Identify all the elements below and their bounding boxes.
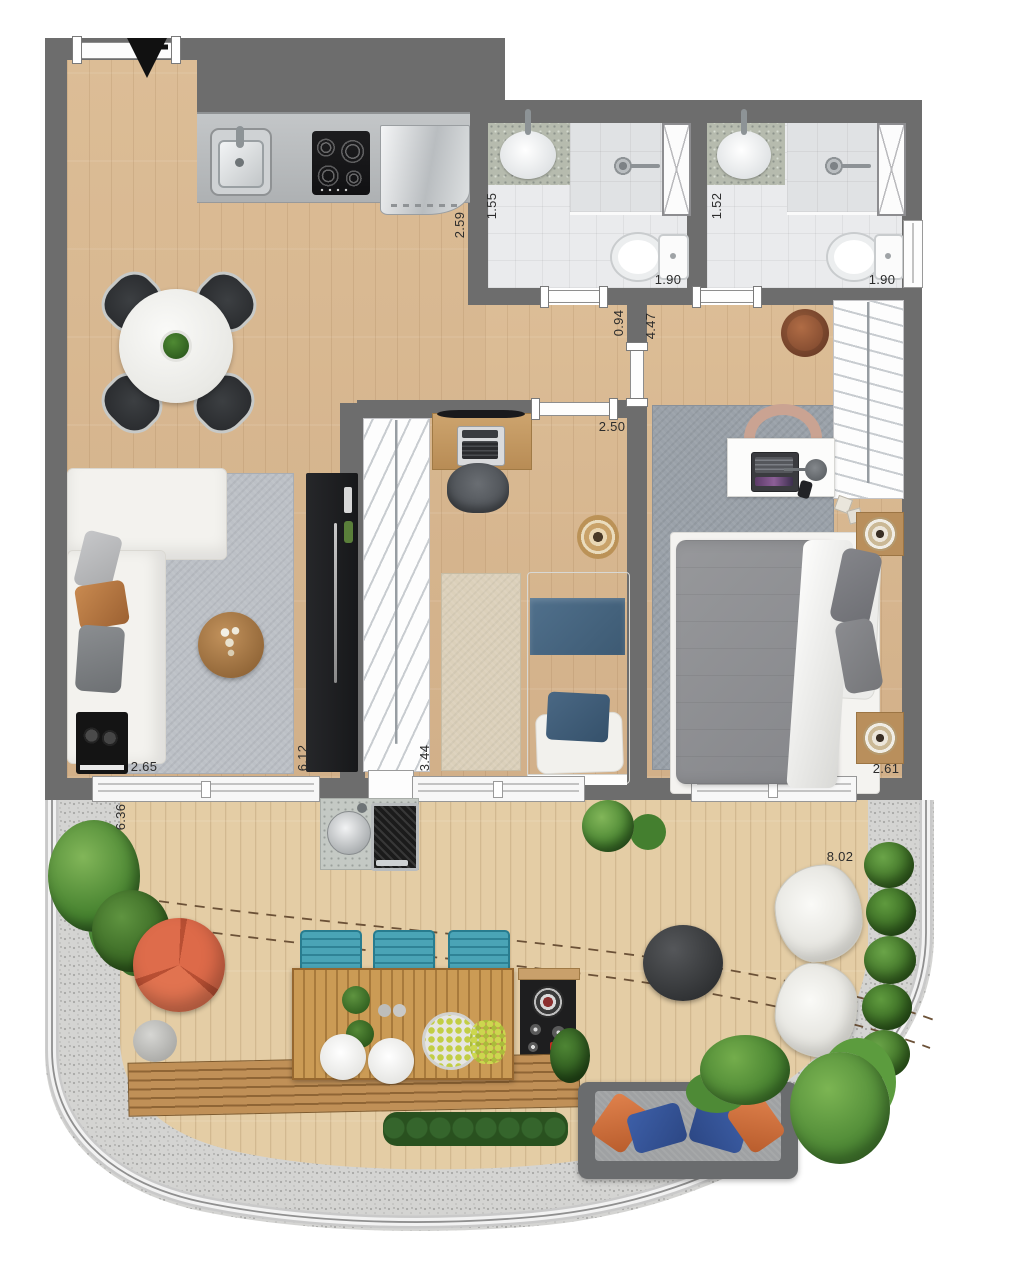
dim-bedroom1-entry: 2.50	[592, 420, 632, 434]
bedroom2-pouf	[781, 309, 829, 357]
terrace-hedge-plant	[864, 936, 916, 984]
bath1-toilet-flush	[670, 253, 676, 259]
bedroom1-rug	[441, 573, 521, 771]
bath1-vanity	[488, 123, 570, 185]
nightstand-top	[856, 512, 904, 556]
kitchen-sink-drain	[235, 158, 244, 167]
nightstand-top-lamp	[863, 517, 897, 551]
terrace-plant	[550, 1028, 590, 1083]
outdoor-grill-tray	[376, 860, 408, 866]
bath2-door-jamb-left	[692, 286, 701, 308]
bedroom1-door-jamb-left	[531, 398, 540, 420]
refrigerator	[380, 125, 470, 215]
dim-terrace-width: 8.02	[820, 850, 860, 864]
bath1-shower	[570, 123, 662, 215]
sofa-cushion-orange	[74, 579, 130, 630]
dining-centerpiece-plant	[163, 333, 189, 359]
terrace-stone-table	[133, 1020, 177, 1062]
bedroom1-sliding-door-mullion	[493, 781, 503, 798]
dim-bedroom1-side: 3.44	[418, 738, 432, 778]
bath2-sink	[717, 131, 771, 179]
bath1-shower-arm	[630, 164, 660, 168]
kitchen-sink	[210, 128, 272, 196]
single-bed	[527, 572, 630, 784]
dim-terrace-side: 6.36	[114, 797, 128, 837]
dim-hall-passage: 0.94	[612, 303, 626, 343]
bedroom1-basket	[577, 515, 619, 559]
bedroom1-laptop	[457, 426, 505, 466]
table-grapes	[470, 1020, 506, 1064]
dim-bath1-length: 1.90	[648, 273, 688, 287]
terrace-hedge-plant	[862, 984, 912, 1030]
kitchen-faucet	[236, 126, 244, 148]
side-table-shelf	[80, 765, 124, 770]
wall-bedrooms-divider-lower	[627, 402, 647, 778]
terrace-orange-pouf	[133, 918, 225, 1012]
bbq-cart-wood-top	[518, 968, 580, 980]
single-bed-blanket	[530, 598, 625, 655]
bedroom2-door-jamb-bottom	[626, 398, 648, 407]
bedroom1-desk	[432, 413, 532, 470]
single-bed-pillow-navy	[546, 691, 610, 742]
bath2-door-leaf	[699, 290, 755, 303]
cooktop-knobs	[318, 188, 352, 192]
bedroom1-monitor-arm	[437, 410, 525, 418]
coffee-table-flowers	[216, 624, 246, 658]
table-salt-pepper	[393, 1004, 406, 1017]
refrigerator-vents	[391, 204, 459, 207]
entry-arrow	[0, 0, 220, 120]
tv-panel-handle	[334, 523, 337, 683]
bath2-toilet-flush	[885, 253, 891, 259]
bbq-knob	[528, 1042, 538, 1052]
bath2-shower-arm	[841, 164, 871, 168]
tv-panel-plant	[344, 521, 353, 543]
terrace-hedge-plant	[866, 888, 916, 936]
dim-bath2-length: 1.90	[862, 273, 902, 287]
bbq-burner	[532, 986, 564, 1018]
living-sliding-door-mullion	[201, 781, 211, 798]
bedroom2-desk-lamp-arm	[784, 468, 808, 471]
table-plant-pot	[342, 986, 370, 1014]
bath2-shower-door	[877, 123, 906, 216]
bath1-sink	[500, 131, 556, 179]
tv-panel	[306, 473, 358, 772]
outdoor-grill	[371, 803, 419, 871]
wall-bottom-1	[45, 778, 95, 800]
terrace-dining-table	[292, 968, 514, 1080]
terrace-plant	[582, 800, 634, 852]
bedroom2-desk-lamp	[805, 459, 827, 481]
dim-kitchen-counter: 2.59	[453, 205, 467, 245]
nightstand-bottom	[856, 712, 904, 764]
bedroom1-desk-chair	[447, 463, 509, 513]
floor-plan-canvas: 2.59 1.55 1.52 1.90 1.90 0.94 4.47 2.50 …	[0, 0, 1020, 1280]
dim-bedroom2-width: 2.61	[866, 762, 906, 776]
bath2-faucet	[741, 109, 747, 135]
dim-bedroom2-length: 4.47	[644, 306, 658, 346]
table-salt-pepper	[378, 1004, 391, 1017]
terrace-plant-large	[790, 1052, 890, 1164]
bath2-window	[903, 220, 923, 288]
bedroom2-laptop-screen	[755, 477, 793, 486]
tv-panel-device	[344, 487, 352, 513]
wall-bath-bottom-a	[468, 288, 545, 305]
bedroom1-door-jamb-right	[609, 398, 618, 420]
bedroom2-desk	[727, 438, 835, 497]
sofa-cushion-dark	[75, 624, 125, 693]
wall-left	[45, 38, 67, 800]
bath1-door-leaf	[547, 290, 601, 303]
bath2-vanity	[707, 123, 785, 185]
bbq-knob	[530, 1024, 541, 1035]
terrace-plant-large	[700, 1035, 790, 1105]
dim-bath2-width: 1.52	[710, 186, 724, 226]
bedroom1-closet	[363, 418, 430, 772]
dim-living-length: 6.12	[296, 738, 310, 778]
bath2-door-jamb-right	[753, 286, 762, 308]
coffee-table	[198, 612, 264, 678]
cooktop	[312, 131, 370, 195]
bedroom1-laptop-screen	[462, 430, 498, 438]
wall-bottom-2	[318, 778, 370, 800]
outdoor-counter	[320, 798, 419, 870]
bedroom2-closet	[833, 300, 904, 499]
outdoor-sink	[327, 811, 371, 855]
table-plate	[368, 1038, 414, 1084]
bedroom2-laptop	[751, 452, 799, 492]
bedroom1-door-leaf	[538, 402, 611, 416]
bath2-window-mullion	[912, 223, 914, 283]
bath2-shower	[787, 123, 877, 215]
nightstand-bottom-lamp	[863, 721, 897, 755]
bath1-door-jamb-right	[599, 286, 608, 308]
dim-bath1-width: 1.55	[485, 186, 499, 226]
side-table	[76, 712, 128, 774]
bedroom1-sliding-door	[412, 776, 585, 802]
bedroom2-door-leaf	[630, 349, 644, 401]
terrace-hedge-plant	[864, 842, 914, 888]
wall-kitchen-block	[197, 38, 505, 112]
bedroom2-phone	[797, 480, 813, 500]
bath1-door-jamb-left	[540, 286, 549, 308]
outdoor-faucet	[357, 803, 367, 813]
wall-bath-top	[488, 100, 922, 123]
bath1-faucet	[525, 109, 531, 135]
terrace-dark-hedge	[383, 1112, 568, 1146]
bedroom1-laptop-keyboard	[462, 441, 498, 459]
dim-living-side: 2.65	[124, 760, 164, 774]
bath1-shower-door	[662, 123, 691, 216]
dining-table	[119, 289, 233, 403]
terrace-round-table	[643, 925, 723, 1001]
table-plate	[320, 1034, 366, 1080]
